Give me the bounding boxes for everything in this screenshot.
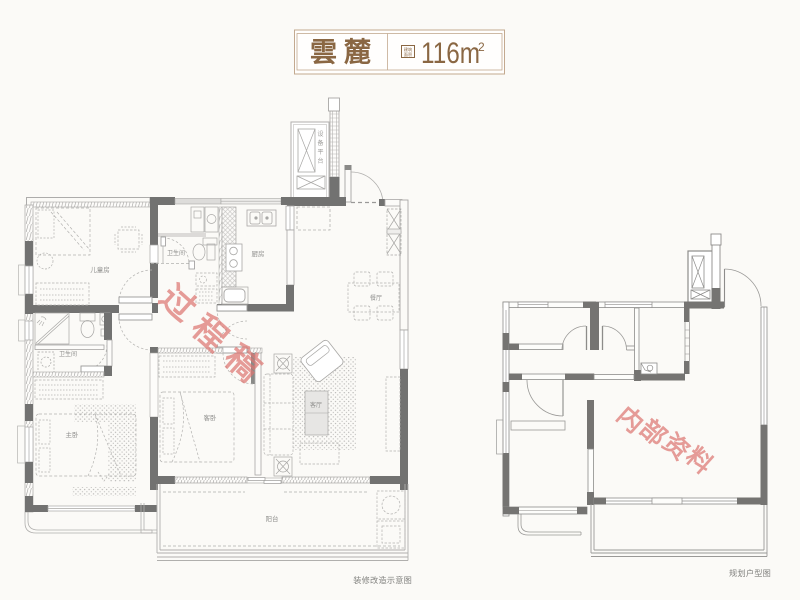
svg-text:台: 台 (317, 157, 323, 165)
svg-text:餐厅: 餐厅 (370, 294, 382, 302)
svg-text:阳台: 阳台 (266, 514, 279, 523)
svg-text:面积: 面积 (404, 51, 412, 58)
svg-text:116m: 116m (421, 37, 480, 70)
svg-text:儿童房: 儿童房 (90, 265, 110, 274)
svg-text:平: 平 (317, 149, 323, 156)
svg-text:备: 备 (317, 139, 323, 147)
svg-text:主卧: 主卧 (66, 430, 80, 439)
svg-text:卫生间: 卫生间 (59, 350, 77, 358)
svg-text:客厅: 客厅 (310, 401, 322, 409)
svg-text:卫生间: 卫生间 (167, 249, 185, 257)
svg-text:2: 2 (478, 40, 485, 54)
svg-text:厨房: 厨房 (252, 249, 265, 258)
svg-text:客卧: 客卧 (204, 413, 218, 422)
svg-text:规划户型图: 规划户型图 (729, 568, 771, 578)
svg-text:设: 设 (317, 130, 323, 138)
svg-text:雲麓: 雲麓 (310, 38, 378, 68)
svg-text:装修改造示意图: 装修改造示意图 (353, 575, 412, 585)
